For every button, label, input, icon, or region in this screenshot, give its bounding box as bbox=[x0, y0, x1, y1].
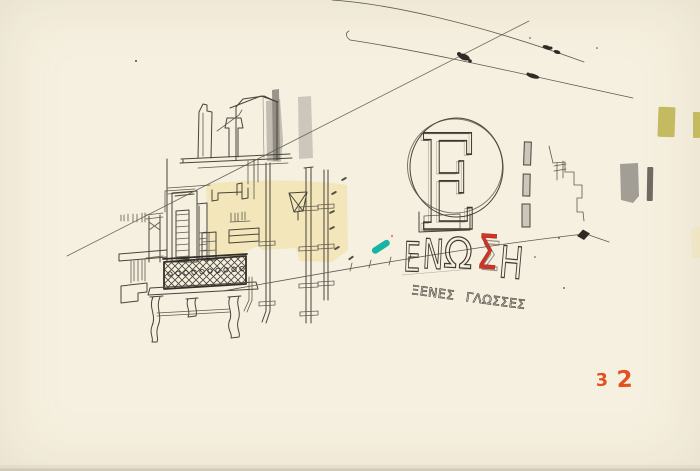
paper-bottom-edge bbox=[0, 465, 700, 471]
page-number-digit: 3 bbox=[595, 371, 608, 391]
bird-icon bbox=[553, 49, 561, 55]
power-lines bbox=[67, 0, 633, 256]
sign-letter-epsilon: Ε bbox=[403, 233, 422, 282]
page-number: 3 2 bbox=[595, 367, 633, 394]
chimney-tall bbox=[198, 104, 212, 158]
paint-swatches bbox=[620, 107, 700, 203]
yellow-wash-corner bbox=[691, 227, 700, 258]
drainpipe-a-brackets bbox=[259, 241, 275, 306]
sign-wire-ticks bbox=[350, 254, 411, 271]
paint-swatch-olive-edge bbox=[693, 112, 700, 138]
right-building-outline bbox=[522, 142, 584, 227]
window-slits bbox=[522, 142, 531, 227]
stepped-building-edge bbox=[549, 146, 584, 221]
rooftop-h-antenna bbox=[554, 161, 566, 180]
wire-arrow-blob bbox=[577, 230, 590, 241]
paint-swatch-olive bbox=[657, 107, 675, 138]
bulkhead-inner-edge bbox=[263, 98, 264, 158]
sign-letter-sigma-red: Σ bbox=[475, 224, 500, 281]
chimney-short bbox=[225, 118, 243, 157]
sketch-svg: E E Ε Ν Ω Σ Σ Η ΞΕΝΕΣ ΓΛΩΣΣΕΣ bbox=[0, 0, 700, 471]
balcony bbox=[121, 254, 258, 342]
under-balcony-step bbox=[121, 283, 147, 303]
louvered-shutter bbox=[176, 210, 189, 259]
balcony-brackets bbox=[150, 296, 241, 342]
paint-swatch-gray bbox=[620, 163, 639, 203]
tiny-window-marks bbox=[121, 213, 145, 222]
sign-letter-nu: Ν bbox=[421, 230, 444, 279]
artwork-canvas: E E Ε Ν Ω Σ Σ Η ΞΕΝΕΣ ΓΛΩΣΣΕΣ bbox=[0, 0, 700, 471]
sign-letter-eta: Η bbox=[497, 237, 525, 290]
roof-cornice-2 bbox=[198, 163, 288, 168]
paint-swatch-dark-gray bbox=[647, 167, 654, 201]
gray-wash-streak-right bbox=[298, 96, 313, 159]
teal-accent-mark bbox=[371, 239, 391, 255]
pilaster bbox=[146, 213, 163, 262]
sign-letter-omega: Ω bbox=[442, 228, 474, 278]
page-number-digit: 2 bbox=[616, 367, 633, 394]
